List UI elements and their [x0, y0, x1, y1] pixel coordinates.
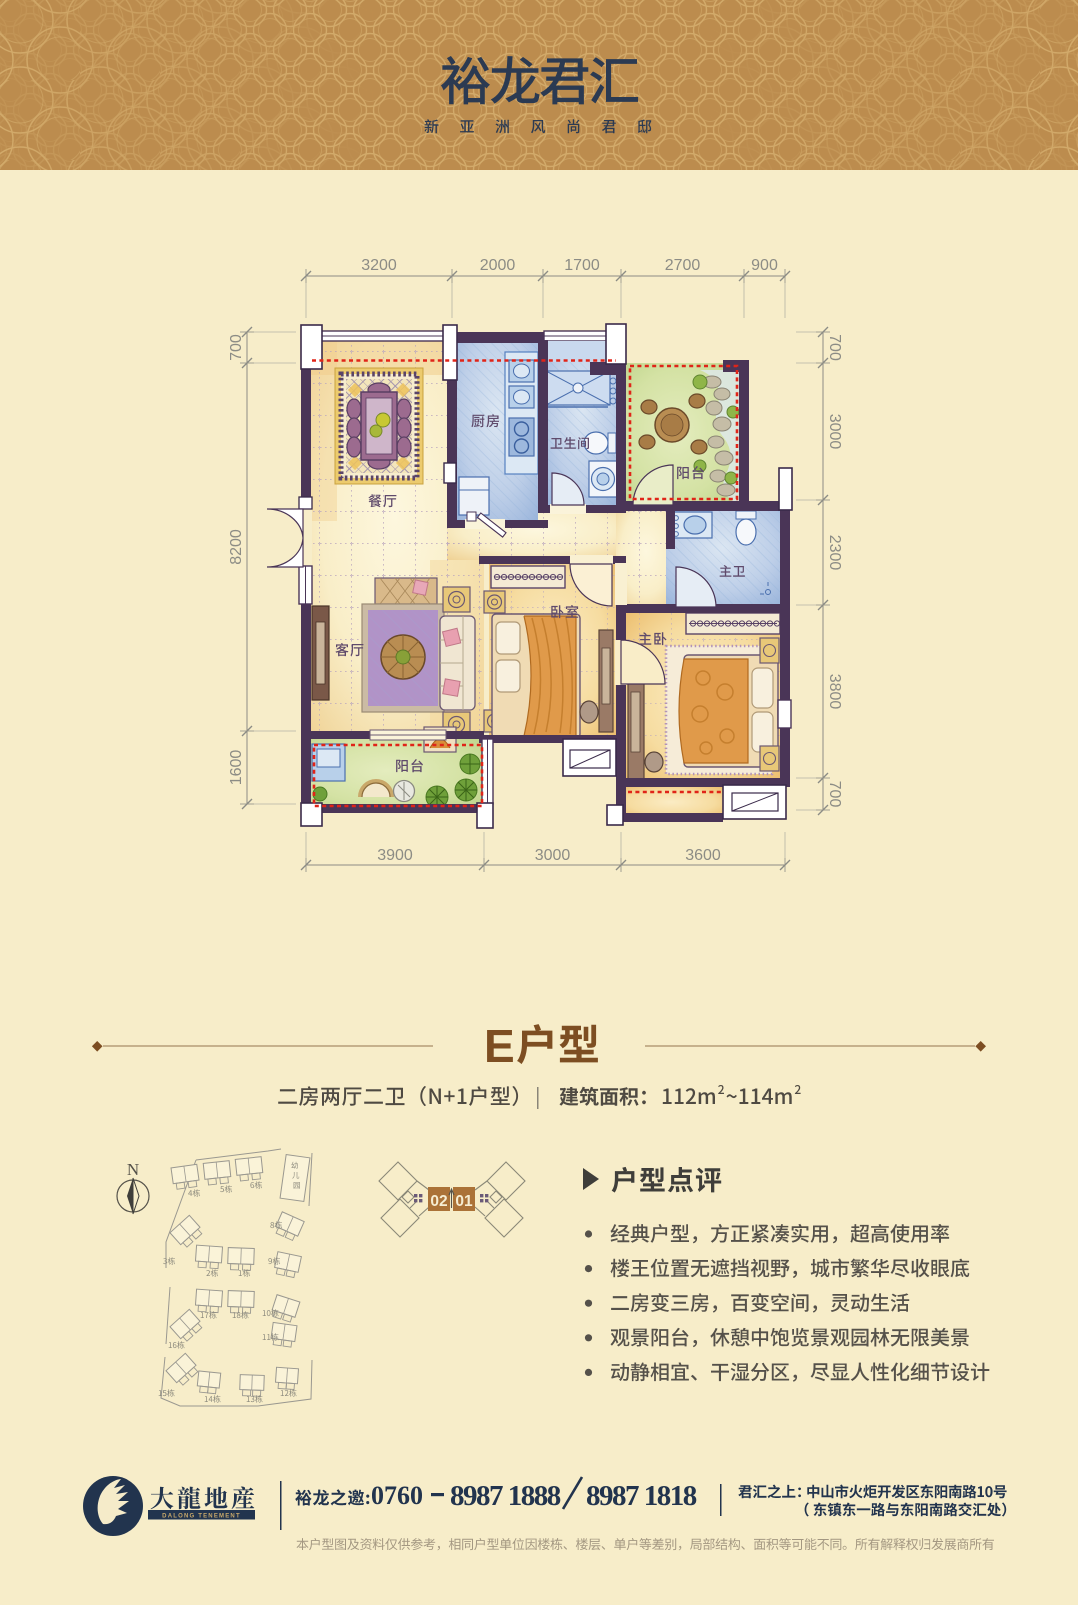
svg-text:1600: 1600: [228, 750, 245, 786]
svg-text:E: E: [484, 1020, 515, 1072]
svg-text:0760: 0760: [371, 1481, 423, 1510]
svg-text:700: 700: [826, 334, 843, 361]
svg-text:8987 1888: 8987 1888: [450, 1480, 561, 1512]
svg-text:3900: 3900: [377, 847, 413, 864]
svg-text:700: 700: [826, 781, 843, 808]
svg-text:8987 1818: 8987 1818: [586, 1480, 697, 1512]
svg-text:DALONG TENEMENT: DALONG TENEMENT: [162, 1513, 241, 1519]
svg-text:3800: 3800: [826, 674, 843, 710]
svg-text:700: 700: [228, 334, 245, 361]
svg-text:3000: 3000: [826, 414, 843, 450]
svg-text:3000: 3000: [535, 847, 571, 864]
svg-text:8200: 8200: [228, 529, 245, 565]
svg-text:N: N: [127, 1160, 139, 1179]
svg-text:900: 900: [751, 257, 778, 274]
svg-text:3200: 3200: [361, 257, 397, 274]
svg-text:2000: 2000: [480, 257, 516, 274]
svg-text:2300: 2300: [826, 535, 843, 571]
svg-text:01: 01: [455, 1193, 473, 1210]
svg-text:2700: 2700: [665, 257, 701, 274]
svg-text:02: 02: [430, 1193, 447, 1210]
svg-text:3600: 3600: [685, 847, 721, 864]
svg-text:1700: 1700: [564, 257, 600, 274]
